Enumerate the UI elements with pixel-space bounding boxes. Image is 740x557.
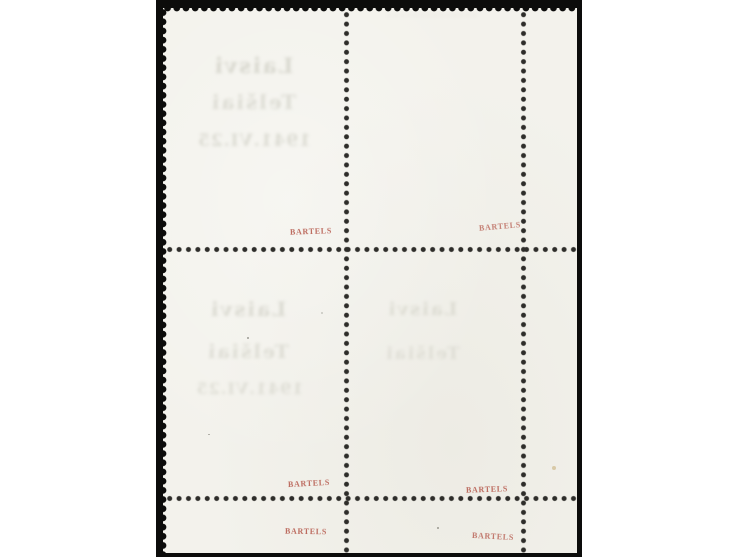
- perforation-line-vertical-center: [342, 10, 351, 553]
- dust-speck: [247, 337, 249, 339]
- dust-speck: [437, 527, 439, 529]
- offset-impression-top-left-line2: Telšiai: [203, 90, 303, 114]
- perforation-line-vertical-right: [519, 10, 528, 553]
- offset-impression-bottom-left-line3: 1941.VI.25: [192, 379, 307, 398]
- offset-impression-bottom-right-line1: Laisvi: [382, 299, 462, 320]
- offset-impression-top-right-smudge: ··············: [356, 9, 506, 24]
- dust-speck: [321, 312, 323, 314]
- dust-speck: [208, 434, 210, 435]
- perforation-line-horizontal-middle: [165, 245, 577, 254]
- perforation-line-horizontal-bottom: [165, 494, 577, 503]
- offset-impression-top-left-line3: 1941.VI.25: [193, 131, 315, 151]
- expert-mark-bartels-1: BARTELS: [290, 227, 332, 236]
- expert-mark-bartels-5: BARTELS: [285, 528, 327, 537]
- perforation-tooth-edge-left: [163, 8, 170, 553]
- paper-blemish: [552, 466, 556, 470]
- offset-impression-bottom-left-line1: Laisvi: [200, 297, 295, 321]
- offset-impression-top-left-line1: Laisvi: [203, 53, 303, 78]
- expert-mark-bartels-4: BARTELS: [466, 485, 508, 494]
- photo-canvas: Laisvi Telšiai 1941.VI.25 Laisvi Telšiai…: [0, 0, 740, 557]
- offset-impression-bottom-right-line2: Telšiai: [382, 344, 462, 364]
- offset-impression-bottom-left-line2: Telšiai: [200, 341, 295, 363]
